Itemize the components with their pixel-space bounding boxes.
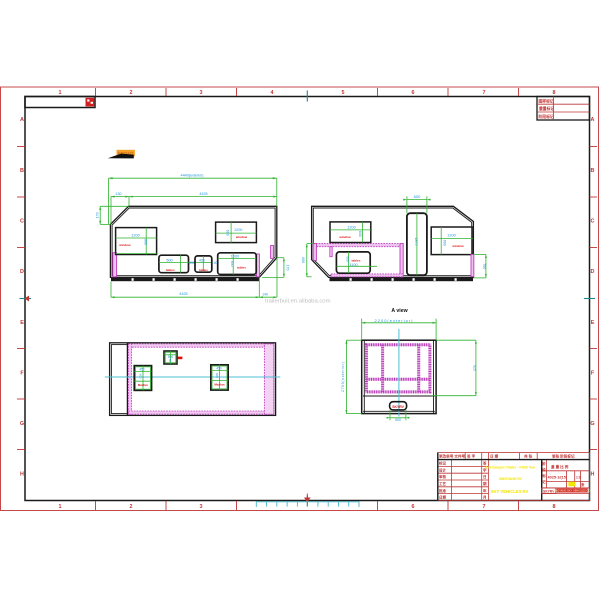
svg-text:600: 600: [225, 230, 229, 236]
svg-text:1000: 1000: [231, 255, 239, 259]
svg-text:D: D: [20, 269, 24, 275]
svg-text:1:8: 1:8: [576, 476, 581, 480]
svg-text:第张 阶段标记: 第张 阶段标记: [552, 454, 575, 459]
svg-text:阶段标记: 阶段标记: [539, 114, 554, 119]
svg-text:5: 5: [342, 90, 345, 96]
svg-text:E: E: [591, 320, 595, 326]
svg-text:1200: 1200: [234, 228, 242, 232]
svg-text:工艺: 工艺: [439, 481, 447, 486]
svg-text:标记: 标记: [438, 461, 447, 466]
svg-text:1200: 1200: [347, 226, 355, 230]
svg-text:600: 600: [442, 240, 446, 246]
svg-text:7: 7: [483, 504, 486, 510]
svg-text:E: E: [20, 320, 24, 326]
svg-text:window: window: [235, 235, 248, 239]
svg-text:tables: tables: [166, 268, 175, 272]
svg-text:trailerbull.en.alibaba.com: trailerbull.en.alibaba.com: [265, 299, 331, 305]
svg-text:130: 130: [115, 192, 121, 196]
svg-text:600: 600: [345, 257, 349, 263]
svg-text:tables: tables: [199, 268, 208, 272]
svg-text:170: 170: [96, 212, 100, 218]
svg-text:4425: 4425: [179, 292, 187, 296]
svg-text:400: 400: [199, 259, 205, 263]
svg-text:50: 50: [168, 359, 172, 363]
svg-text:H: H: [591, 472, 595, 478]
svg-text:设计: 设计: [439, 467, 447, 472]
svg-text:图样标记: 图样标记: [539, 98, 554, 103]
svg-text:B: B: [591, 168, 595, 174]
svg-text:window: window: [118, 243, 131, 247]
svg-text:4: 4: [271, 90, 274, 96]
svg-text:3: 3: [200, 504, 203, 510]
svg-text:500: 500: [395, 418, 401, 422]
svg-text:140: 140: [262, 292, 268, 296]
svg-text:G: G: [20, 421, 24, 427]
svg-text:C: C: [20, 219, 24, 225]
svg-text:日: 日: [483, 474, 487, 479]
svg-text:6: 6: [412, 504, 415, 510]
svg-text:1: 1: [59, 504, 62, 510]
svg-text:C: C: [591, 219, 595, 225]
svg-text:批准: 批准: [439, 488, 447, 493]
svg-text:A view: A view: [391, 308, 408, 314]
svg-text:450: 450: [189, 261, 195, 265]
svg-text:签 字: 签 字: [467, 454, 476, 459]
svg-text:tables: tables: [237, 265, 246, 269]
svg-text:日 期: 日 期: [490, 454, 499, 459]
svg-text:月: 月: [482, 494, 487, 499]
svg-text:XINGYANG SKY VEHICLES CO.: XINGYANG SKY VEHICLES CO.: [553, 489, 592, 493]
svg-text:8: 8: [553, 504, 556, 510]
svg-text:G: G: [590, 421, 594, 427]
svg-text:window: window: [451, 244, 464, 248]
svg-text:年: 年: [483, 488, 487, 493]
svg-text:标: 标: [541, 473, 546, 478]
svg-text:B: B: [20, 168, 24, 174]
svg-text:重 量 比 例: 重 量 比 例: [551, 464, 569, 469]
svg-text:1: 1: [59, 90, 62, 96]
svg-text:D: D: [591, 269, 595, 275]
svg-text:600: 600: [358, 231, 362, 237]
svg-text:SKY VEHICLES RV: SKY VEHICLES RV: [491, 489, 529, 494]
svg-text:7: 7: [483, 90, 486, 96]
svg-text:700: 700: [482, 263, 486, 269]
svg-text:500: 500: [166, 258, 172, 262]
svg-text:审核: 审核: [439, 474, 447, 479]
svg-text:4425: 4425: [199, 192, 207, 196]
svg-text:6: 6: [412, 90, 415, 96]
svg-text:共 张: 共 张: [524, 454, 533, 459]
svg-text:Maxfan: Maxfan: [215, 383, 225, 387]
svg-text:A: A: [20, 117, 24, 123]
svg-text:期: 期: [482, 481, 487, 486]
svg-text:900: 900: [301, 257, 305, 263]
svg-text:8: 8: [553, 90, 556, 96]
svg-text:日期: 日期: [439, 494, 447, 499]
svg-text:600: 600: [144, 239, 148, 245]
svg-text:600: 600: [414, 194, 421, 199]
svg-text:4440(exterior): 4440(exterior): [181, 174, 205, 178]
svg-text:170: 170: [285, 265, 289, 271]
svg-text:600: 600: [138, 374, 142, 379]
svg-text:更改单号 文件号: 更改单号 文件号: [438, 454, 466, 459]
svg-text:1200: 1200: [447, 234, 455, 238]
svg-text:tables: tables: [352, 259, 361, 263]
svg-text:600: 600: [215, 373, 219, 378]
svg-text:重量标记: 重量标记: [539, 106, 554, 111]
svg-text:925: 925: [473, 365, 477, 371]
svg-text:2: 2: [130, 90, 133, 96]
svg-text:2200(exterior): 2200(exterior): [375, 318, 414, 323]
svg-text:450: 450: [139, 367, 145, 371]
svg-text:1200: 1200: [131, 234, 139, 238]
svg-text:1875: 1875: [414, 238, 418, 246]
svg-text:4x4 Camper Trailer - FS09 Van: 4x4 Camper Trailer - FS09 Van: [485, 466, 535, 470]
svg-text:SKYRV: SKYRV: [392, 405, 404, 409]
svg-text:3: 3: [200, 90, 203, 96]
svg-text:1100: 1100: [349, 263, 357, 267]
svg-text:4025-1/(15): 4025-1/(15): [548, 476, 568, 480]
svg-text:2: 2: [130, 504, 133, 510]
svg-text:40: 40: [214, 261, 218, 265]
svg-text:window: window: [338, 235, 351, 239]
svg-text:2700(exterior): 2700(exterior): [341, 362, 345, 392]
svg-text:A: A: [591, 117, 595, 123]
svg-text:600: 600: [230, 261, 234, 267]
svg-text:XINGYANG RV: XINGYANG RV: [499, 477, 523, 481]
svg-text:Maxfan: Maxfan: [138, 383, 148, 387]
svg-text:450: 450: [216, 367, 222, 371]
svg-text:H: H: [20, 472, 24, 478]
